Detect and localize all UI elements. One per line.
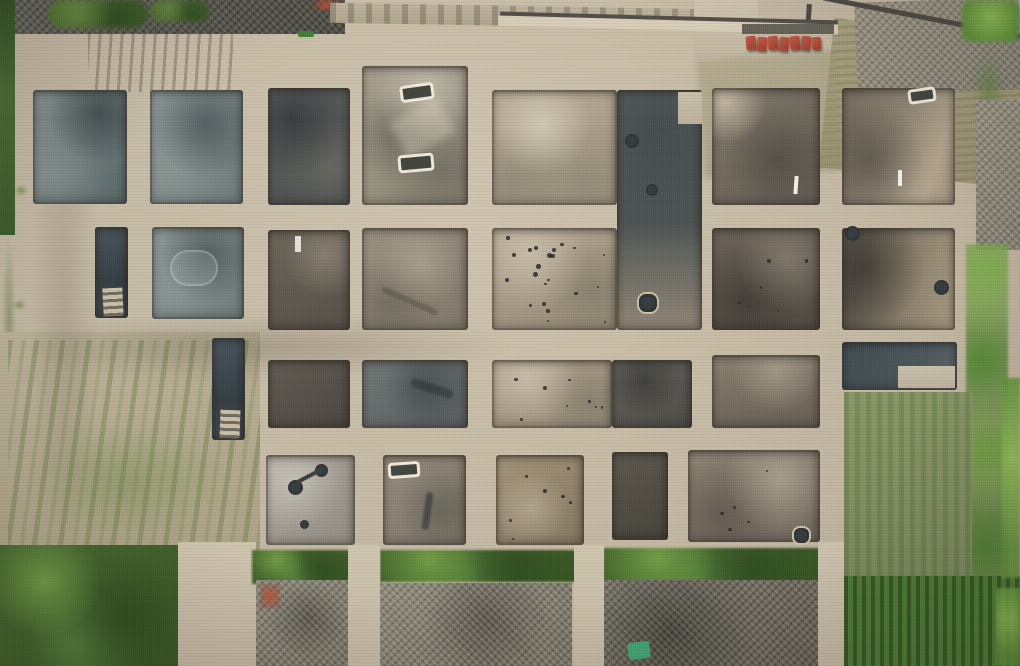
trench-square [492, 90, 617, 205]
posthole-dot [766, 470, 768, 472]
bright-green-corner [996, 588, 1020, 666]
trench-square [268, 88, 350, 205]
trench-square [150, 90, 243, 204]
posthole-dot [597, 286, 599, 288]
gravel-plot-1 [256, 580, 350, 666]
trench-square [492, 228, 617, 330]
field-streak-blotch [30, 420, 230, 540]
feature-curve [170, 250, 218, 286]
trench-slab-dark [617, 90, 702, 330]
posthole-dot [534, 246, 538, 250]
trench-ledge [898, 366, 955, 388]
red-cart [800, 36, 811, 51]
top-trees [48, 0, 148, 28]
top-trees-2 [150, 0, 210, 22]
posthole-dot [529, 304, 532, 307]
marker-stick [295, 236, 301, 252]
pit-large [845, 226, 860, 241]
posthole-dot [720, 512, 723, 515]
posthole-dot [533, 272, 538, 277]
posthole-dot [561, 495, 564, 498]
scale-marker [907, 86, 937, 105]
field-bottom-left [0, 332, 260, 554]
apron-weeds [886, 168, 950, 210]
posthole-dot [528, 248, 532, 252]
feature-diagonal [381, 286, 438, 316]
trench-square [33, 90, 127, 204]
pipe-line [822, 0, 1020, 42]
pit-large [646, 184, 658, 196]
posthole-dot [506, 236, 509, 239]
posthole-dot [566, 405, 569, 408]
posthole-dot [525, 475, 527, 477]
shade-band-mid [0, 315, 520, 379]
gravel-plot-3 [602, 580, 818, 666]
posthole-dot [777, 310, 780, 313]
boundary-wall-shadow [500, 12, 838, 26]
trench-square [712, 355, 820, 428]
posthole-dot [542, 302, 546, 306]
muted-field-right [844, 392, 972, 580]
right-weeds [972, 52, 1006, 122]
trench-square [712, 228, 820, 330]
trench-square [612, 452, 668, 540]
posthole-dot [567, 467, 570, 470]
trench-square [842, 228, 955, 330]
posthole-dot [546, 309, 549, 312]
pit-small [300, 520, 309, 529]
trench-square [842, 88, 955, 205]
hedge-band [252, 550, 352, 584]
posthole-dot [568, 379, 571, 382]
green-tarp [627, 641, 651, 661]
right-plants-column [966, 244, 1008, 580]
path-south [348, 545, 380, 666]
pit-large [288, 480, 303, 495]
posthole-dot [601, 406, 604, 409]
gravel-top-right [854, 0, 1020, 95]
vignette-overlay [0, 0, 1020, 666]
narrow-trench [212, 338, 245, 440]
trench-square [712, 88, 820, 205]
path-south [574, 545, 604, 666]
red-cart [812, 37, 822, 50]
posthole-dot [560, 243, 563, 246]
scale-marker [387, 461, 420, 479]
gravel-right-column [976, 100, 1020, 250]
pit-connector [296, 468, 323, 485]
pit-large [625, 134, 639, 148]
posthole-dot [588, 400, 591, 403]
hedge-band [380, 550, 577, 582]
posthole-dot [595, 406, 597, 408]
hedge-band [603, 548, 821, 582]
trench-square [362, 360, 468, 428]
trench-square [612, 360, 692, 428]
track-road [330, 3, 710, 30]
posthole-dot [603, 254, 605, 256]
posthole-dot [573, 247, 576, 250]
posthole-dot [569, 501, 572, 504]
narrow-trench [95, 227, 128, 318]
topsoil-gravel-band [0, 0, 345, 34]
posthole-dot [760, 286, 763, 289]
left-tuft [13, 300, 26, 310]
posthole-dot [574, 292, 577, 295]
corner-bushes [962, 0, 1020, 42]
tire-tracks [88, 30, 233, 92]
gravel-plot-2 [380, 583, 572, 666]
trench-square [268, 360, 350, 428]
trench-square [688, 450, 820, 542]
trench-steps [102, 287, 123, 316]
left-hedge-bottom [0, 400, 15, 666]
stick-marker [793, 176, 798, 194]
crop-rows-right [844, 576, 1020, 666]
posthole-dot [747, 521, 750, 524]
red-debris-pile [260, 584, 280, 608]
posthole-dot [748, 306, 750, 308]
machine-green [298, 31, 314, 37]
aerial-photo-scene [0, 0, 1020, 666]
trench-steps [220, 410, 241, 439]
posthole-dot [544, 283, 547, 286]
pit-large [934, 280, 949, 295]
trench-square [266, 455, 355, 545]
trench-square [268, 230, 350, 330]
boundary-wall [498, 16, 838, 35]
posthole-dot [767, 259, 771, 263]
pit-large [315, 464, 328, 477]
feature-gully [421, 492, 433, 531]
baulk-notch [678, 92, 702, 124]
red-cart [768, 36, 779, 51]
posthole-dot [547, 279, 550, 282]
posthole-dot [552, 248, 556, 252]
posthole-dot [547, 253, 552, 258]
bright-green-edge [1002, 378, 1020, 578]
left-hedge-mid-tufts [2, 235, 16, 405]
feature-blob [410, 377, 455, 399]
hedge-bottom-left [0, 545, 180, 666]
posthole-dot [509, 519, 512, 522]
posthole-dot [805, 259, 808, 262]
pit-large [637, 292, 659, 314]
pipe-stub [805, 4, 812, 30]
red-debris-top [312, 0, 340, 10]
cart-shed-shadow [742, 24, 834, 34]
path-south [818, 542, 848, 666]
scale-marker [397, 152, 434, 173]
trench-square [152, 227, 244, 319]
red-cart [778, 36, 790, 51]
access-road [694, 0, 758, 58]
trench-square [383, 455, 466, 545]
left-hedge-top [0, 0, 15, 235]
excavation-ground [0, 0, 1020, 666]
stick-marker [898, 170, 902, 186]
pit-large [792, 526, 811, 545]
l-shaped-trench [842, 342, 957, 390]
red-cart [756, 37, 767, 52]
khaki-grass-2 [696, 50, 844, 179]
trench-square [362, 228, 468, 330]
khaki-grass [819, 18, 1020, 188]
grain-overlay [0, 0, 1020, 666]
left-tuft [14, 185, 28, 196]
red-cart [745, 36, 756, 51]
posthole-dot [536, 264, 540, 268]
posthole-dot [738, 302, 740, 304]
feature-light-streak [389, 97, 457, 159]
shade-band-left [30, 60, 100, 540]
posthole-dot [604, 321, 606, 323]
scale-marker [399, 82, 435, 104]
posthole-dot [733, 506, 736, 509]
posthole-dot [728, 528, 732, 532]
posthole-dot [512, 253, 516, 257]
posthole-dot [520, 418, 523, 421]
posthole-dot [550, 254, 555, 259]
posthole-dot [514, 378, 518, 382]
field-path [178, 542, 256, 666]
field-green-streaks [8, 340, 260, 552]
posthole-dot [543, 489, 547, 493]
posthole-dot [543, 386, 547, 390]
trench-square [496, 455, 584, 545]
posthole-dot [547, 320, 549, 322]
trench-square [492, 360, 612, 428]
red-cart [789, 36, 800, 51]
trench-square [362, 66, 468, 205]
posthole-dot [512, 538, 514, 540]
posthole-dot [505, 278, 509, 282]
